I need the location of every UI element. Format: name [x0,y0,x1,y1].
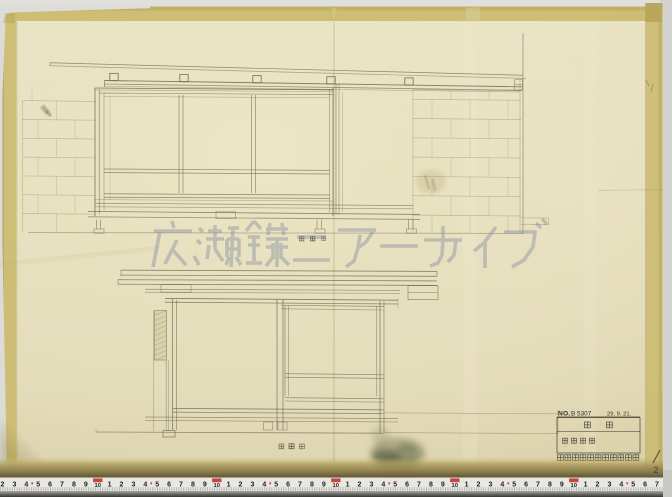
svg-text:1: 1 [227,482,231,489]
svg-text:1: 1 [346,482,350,489]
svg-text:2: 2 [654,465,659,475]
svg-text:6: 6 [48,482,52,489]
svg-text:4: 4 [143,482,147,489]
svg-text:4: 4 [500,482,504,489]
svg-text:3: 3 [607,482,611,489]
svg-text:B 5307: B 5307 [571,411,592,418]
svg-text:3: 3 [488,482,492,489]
svg-text:6: 6 [643,482,647,489]
svg-text:6: 6 [167,482,171,489]
svg-text:9: 9 [84,482,88,489]
svg-text:9: 9 [560,482,564,489]
svg-text:10: 10 [332,483,338,489]
svg-text:1: 1 [584,482,588,489]
svg-text:3: 3 [12,482,16,489]
svg-text:7: 7 [298,482,302,489]
svg-text:2: 2 [358,482,362,489]
svg-text:6: 6 [524,482,528,489]
svg-text:1: 1 [465,482,469,489]
svg-text:2: 2 [239,482,243,489]
svg-text:NO.: NO. [558,411,570,418]
svg-text:9: 9 [441,482,445,489]
svg-text:7: 7 [179,482,183,489]
svg-text:3: 3 [131,482,135,489]
svg-text:2: 2 [596,482,600,489]
svg-text:6: 6 [286,482,290,489]
svg-text:4: 4 [262,482,266,489]
svg-text:5: 5 [512,482,516,489]
svg-text:29. 9. 21.: 29. 9. 21. [607,411,632,417]
svg-text:7: 7 [655,482,659,489]
svg-text:10: 10 [213,483,219,489]
svg-text:5: 5 [631,482,635,489]
svg-text:8: 8 [429,482,433,489]
svg-text:6: 6 [405,482,409,489]
svg-text:1: 1 [108,482,112,489]
svg-text:8: 8 [548,482,552,489]
svg-text:10: 10 [451,483,457,489]
svg-text:2: 2 [1,482,5,489]
svg-text:5: 5 [393,482,397,489]
svg-text:5: 5 [155,482,159,489]
svg-text:4: 4 [381,482,385,489]
svg-text:9: 9 [322,482,326,489]
svg-text:2: 2 [477,482,481,489]
svg-text:3: 3 [250,482,254,489]
svg-text:4: 4 [24,482,28,489]
svg-text:7: 7 [417,482,421,489]
svg-text:9: 9 [203,482,207,489]
svg-text:8: 8 [72,482,76,489]
svg-text:10: 10 [94,483,100,489]
svg-text:4: 4 [619,482,623,489]
svg-text:5: 5 [36,482,40,489]
svg-text:10: 10 [570,483,576,489]
svg-text:3: 3 [369,482,373,489]
svg-text:8: 8 [191,482,195,489]
svg-text:2: 2 [120,482,124,489]
svg-text:7: 7 [536,482,540,489]
svg-text:8: 8 [310,482,314,489]
svg-text:5: 5 [274,482,278,489]
svg-text:7: 7 [60,482,64,489]
